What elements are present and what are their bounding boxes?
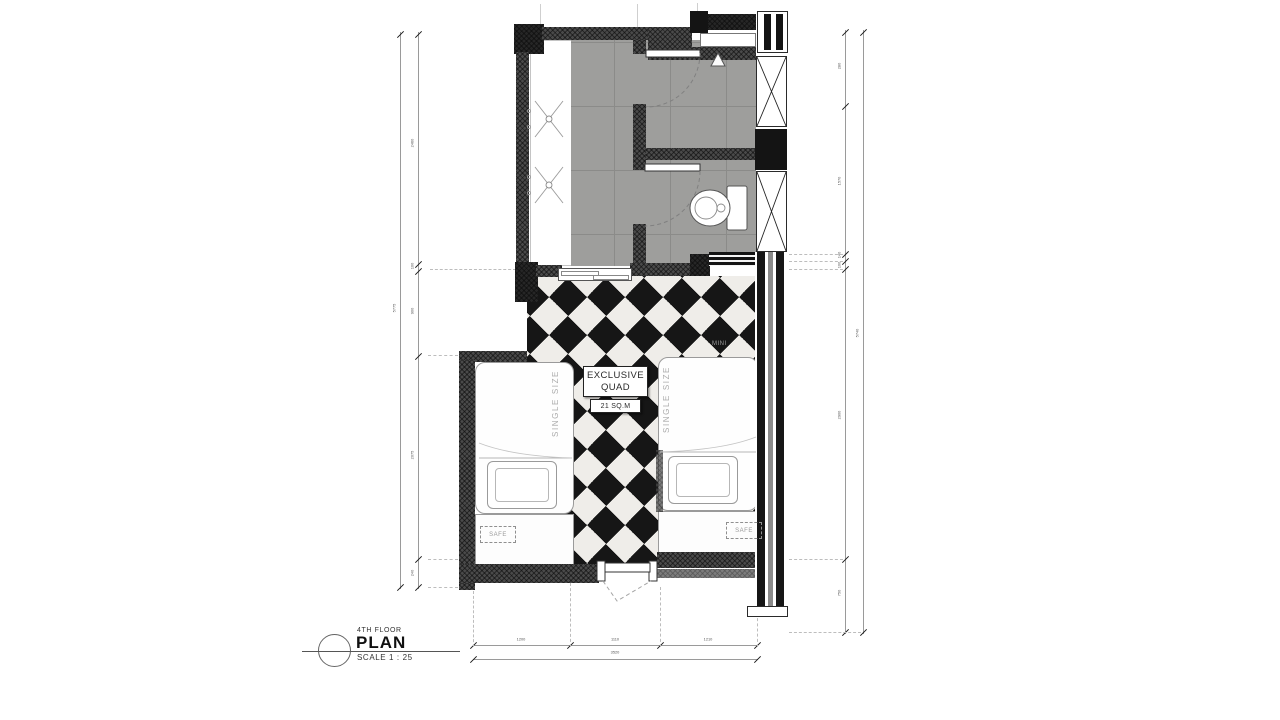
dim-value: 240 xyxy=(411,563,415,583)
dim-value: 100 xyxy=(838,255,842,275)
room-name-box: EXCLUSIVE QUAD xyxy=(583,366,648,397)
shaft-top xyxy=(757,11,788,53)
room-name-line1: EXCLUSIVE xyxy=(587,370,644,381)
dim-value: 280 xyxy=(838,56,842,76)
column-top-right xyxy=(690,11,708,33)
extension-line xyxy=(428,587,458,588)
dim-tick xyxy=(754,656,761,663)
extension-line xyxy=(428,355,458,356)
room-name-line2: QUAD xyxy=(601,382,630,393)
scale-label: SCALE 1 : 25 xyxy=(357,653,413,662)
dim-tick xyxy=(397,584,404,591)
column-shaft-mid xyxy=(755,129,787,170)
dim-value: 100 xyxy=(411,256,415,276)
duct-shaft-upper xyxy=(756,56,787,127)
dim-value: 1570 xyxy=(838,171,842,191)
dim-total: 3520 xyxy=(602,651,628,655)
bed-right-size-label: SINGLE SIZE xyxy=(662,366,671,433)
extension-line xyxy=(570,583,571,647)
extension-line xyxy=(789,261,843,262)
wall-top-right xyxy=(648,27,692,60)
window-sill-band xyxy=(709,252,757,266)
sliding-door xyxy=(558,268,632,281)
extension-line xyxy=(789,559,843,560)
room-area-box: 21 SQ.M xyxy=(590,399,641,413)
plan-title: PLAN xyxy=(356,633,406,653)
safe-right: SAFE xyxy=(726,522,762,539)
safe-left-label: SAFE xyxy=(489,532,507,538)
dim-value: 1110 xyxy=(602,638,628,642)
partition-shower-a xyxy=(633,40,646,54)
shaft-top-bar xyxy=(764,14,771,50)
dim-tick xyxy=(415,584,422,591)
safe-left: SAFE xyxy=(480,526,516,543)
recess-top-right xyxy=(700,33,756,47)
extension-line xyxy=(789,254,843,255)
pillow-right xyxy=(668,456,738,504)
duct-shaft-lower xyxy=(756,171,787,252)
dim-line-bottom-inner xyxy=(473,645,758,646)
extension-line xyxy=(430,269,516,270)
dim-tick xyxy=(860,629,867,636)
lintel-top-right xyxy=(708,14,756,30)
column-junction-right xyxy=(690,254,710,276)
floor-plan-sheet: 2460 100 900 2075 240 5775 280 1570 140 … xyxy=(0,0,1280,720)
safe-right-label: SAFE xyxy=(735,528,753,534)
column-junction-left xyxy=(515,262,538,302)
vanity-counter xyxy=(530,40,572,266)
dim-value: 1210 xyxy=(695,638,721,642)
dim-value: 1200 xyxy=(508,638,534,642)
extension-line xyxy=(540,4,541,24)
extension-line xyxy=(789,632,861,633)
extension-line xyxy=(660,587,661,647)
wall-shower-wc-divider xyxy=(646,148,756,160)
room-area-label: 21 SQ.M xyxy=(601,403,631,410)
extension-line xyxy=(789,269,843,270)
pillow-right-inner xyxy=(676,463,730,497)
partition-wc xyxy=(633,224,646,268)
extension-line xyxy=(757,613,758,647)
extension-line xyxy=(428,559,458,560)
window-wall-cap xyxy=(747,606,788,617)
nightstand-strip xyxy=(656,450,663,512)
window-wall xyxy=(755,252,786,609)
partition-shower-b xyxy=(633,104,646,170)
extension-line xyxy=(473,591,474,647)
dim-line-bottom-outer xyxy=(473,659,758,660)
dim-value: 2900 xyxy=(838,405,842,425)
shaft-top-bar xyxy=(776,14,783,50)
pillow-left-inner xyxy=(495,468,549,502)
pillow-left xyxy=(487,461,557,509)
bed-left-size-label: SINGLE SIZE xyxy=(551,370,560,437)
dim-total: 5740 xyxy=(856,323,860,343)
dim-line-right-outer xyxy=(863,30,864,634)
wall-bath-bottom-right xyxy=(630,263,692,276)
column-top-left xyxy=(514,24,544,54)
wall-bottom-right-band xyxy=(657,569,758,578)
entry-door-swing xyxy=(603,581,651,601)
dim-line-left-inner xyxy=(418,32,419,589)
sliding-door-panel xyxy=(593,275,629,280)
dim-total: 5775 xyxy=(393,298,397,318)
wall-top-right-lower xyxy=(692,47,756,60)
dim-line-right-inner xyxy=(845,30,846,634)
wall-bottom-left xyxy=(459,564,599,583)
wall-left-bathroom xyxy=(516,52,529,266)
dim-value: 2075 xyxy=(411,445,415,465)
wall-bottom-right xyxy=(657,552,758,568)
dim-value: 900 xyxy=(411,301,415,321)
wall-bedroom-left xyxy=(459,360,475,590)
extension-line xyxy=(697,3,698,11)
dim-line-left-outer xyxy=(400,32,401,589)
minibar-label: MINI xyxy=(712,341,727,347)
dim-value: 750 xyxy=(838,583,842,603)
dim-value: 2460 xyxy=(411,133,415,153)
